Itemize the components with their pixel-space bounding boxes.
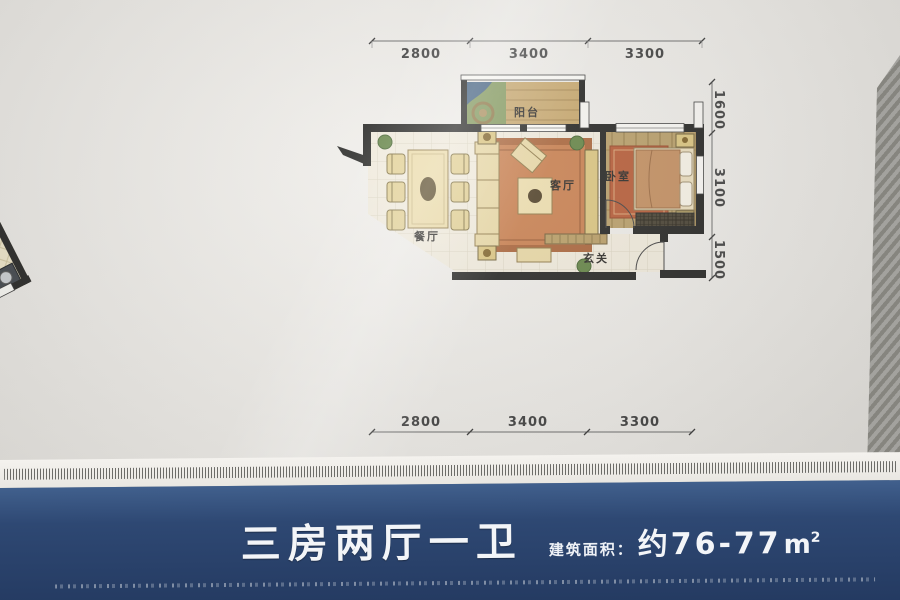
dimension-right: 1600 3100 1500 — [709, 79, 726, 281]
lamp — [483, 133, 491, 141]
blanket — [636, 150, 680, 208]
bedroom-side-window — [697, 156, 704, 194]
footer-band: 三房两厅一卫 建筑面积： 约76-77 m 2 — [0, 480, 900, 600]
tv-cabinet — [585, 150, 598, 238]
dim-right-2: 1500 — [711, 240, 726, 280]
lamp — [483, 249, 491, 257]
dim-bottom-2: 3300 — [620, 415, 660, 430]
balcony-label: 阳台 — [514, 105, 540, 119]
table-medallion — [528, 189, 542, 203]
lamp — [682, 137, 688, 143]
bench — [517, 248, 551, 262]
floor-plan: 卧室 卧室 卫生间 厨房 YD 3700 3450 3100 3100 — [0, 0, 900, 470]
plant — [570, 136, 584, 150]
perforation-lines — [4, 461, 896, 480]
pillow — [680, 182, 692, 206]
ac-ledge — [694, 102, 703, 128]
entry-label: 玄关 — [583, 251, 609, 265]
sofa-armrest — [475, 234, 499, 246]
dim-bottom-0: 2800 — [401, 415, 441, 430]
wardrobe — [636, 213, 694, 227]
area-unit: m — [784, 530, 811, 560]
bedroom-right-label: 卧室 — [605, 169, 631, 183]
wing-walls — [0, 44, 31, 376]
area-label: 建筑面积： — [549, 538, 634, 560]
ac-ledge — [580, 102, 589, 128]
brochure-bottom: 三房两厅一卫 建筑面积： 约76-77 m 2 — [0, 452, 900, 600]
dim-top-0: 2800 — [401, 47, 441, 62]
fine-print — [55, 577, 875, 588]
area-value: 约76-77 — [638, 518, 782, 563]
area-text: 建筑面积： 约76-77 m 2 — [549, 518, 821, 564]
photo-of-floorplan-brochure: 卧室 卧室 卫生间 厨房 YD 3700 3450 3100 3100 — [0, 0, 900, 600]
rotated-wing: 卧室 卧室 卫生间 厨房 YD 3700 3450 3100 3100 — [0, 19, 41, 408]
wing-windows — [0, 52, 15, 377]
balcony-rail — [461, 75, 585, 80]
garden-stone — [479, 109, 487, 117]
dining-label: 餐厅 — [413, 229, 440, 243]
pillow — [680, 152, 692, 176]
table-medallion — [420, 177, 436, 201]
dim-top-1: 3400 — [509, 47, 549, 62]
sofa — [477, 152, 499, 236]
dimension-bottom: 2800 3400 3300 — [369, 415, 695, 435]
dimension-top: 2800 3400 3300 — [369, 38, 705, 62]
area-exponent: 2 — [811, 530, 821, 546]
layout-title: 三房两厅一卫 — [240, 509, 522, 569]
dim-top-2: 3300 — [625, 47, 665, 62]
dim-right-0: 1600 — [711, 90, 726, 130]
plant — [378, 135, 392, 149]
living-label: 客厅 — [549, 178, 576, 192]
dim-bottom-1: 3400 — [508, 415, 548, 430]
dim-right-1: 3100 — [711, 168, 726, 208]
